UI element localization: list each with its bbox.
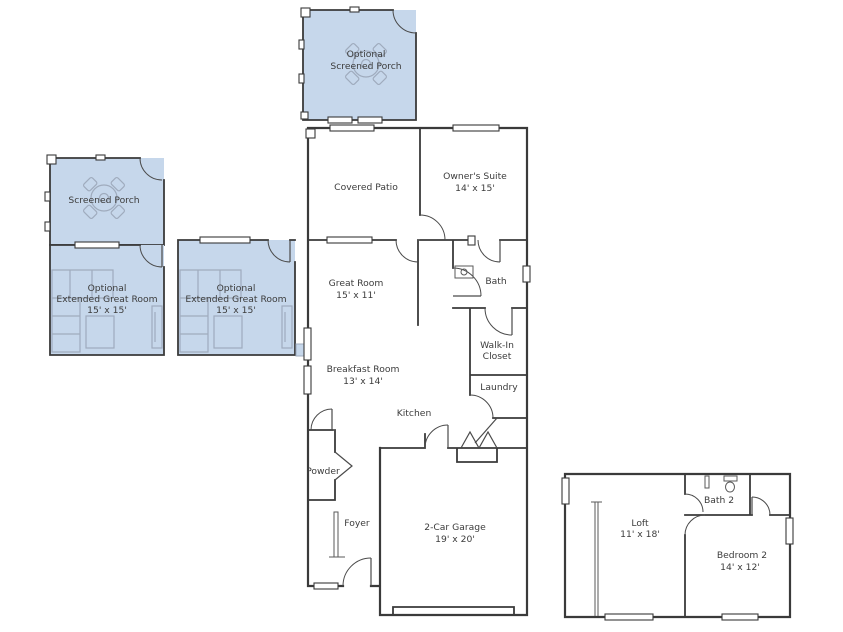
optional-extended-great-room-center: Optional Extended Great Room 15' x 15': [178, 237, 295, 355]
extended-great-room-dimensions: 15' x 15': [216, 305, 256, 316]
second-floor-plan: Loft 11' x 18' Bath 2 Bedroom 2 14' x 12…: [562, 474, 793, 620]
extended-great-room-label: Extended Great Room: [185, 294, 286, 305]
bath-vanity-icon: [455, 266, 473, 278]
breakfast-room-label: Breakfast Room: [327, 364, 400, 375]
garage-label: 2-Car Garage: [424, 522, 486, 533]
breakfast-room-dimensions: 13' x 14': [343, 376, 383, 387]
porch-screen-post: [96, 155, 105, 160]
bath-label: Bath: [485, 276, 507, 287]
bath-2-label: Bath 2: [704, 495, 734, 506]
corner-post: [306, 129, 315, 138]
window: [330, 125, 374, 131]
garage-entry-door-leaf: [475, 418, 497, 443]
window: [786, 518, 793, 544]
window: [304, 366, 311, 394]
screened-porch: Screened Porch: [45, 155, 164, 245]
toilet-icon: [724, 476, 737, 481]
window: [200, 237, 250, 243]
porch-screen-post: [45, 192, 50, 201]
porch-corner-post: [301, 8, 310, 17]
window: [327, 237, 372, 243]
porch-corner-post: [301, 112, 308, 119]
interior-walls: [685, 474, 790, 617]
exterior-walls: [565, 474, 790, 617]
window: [453, 125, 499, 131]
extended-great-room-dimensions: 15' x 15': [87, 305, 127, 316]
garage-dimensions: 19' x 20': [435, 534, 475, 545]
walk-in-closet-label: Walk-In: [480, 340, 514, 351]
toilet-icon: [726, 482, 735, 492]
walk-in-closet-label: Closet: [483, 351, 512, 362]
laundry-label: Laundry: [480, 382, 518, 393]
window: [523, 266, 530, 282]
loft-dimensions: 11' x 18': [620, 529, 660, 540]
optional-extended-great-room-left: Optional Extended Great Room 15' x 15': [50, 242, 164, 355]
porch-screen-post: [350, 7, 359, 12]
powder-label: Powder: [306, 466, 340, 477]
owners-suite-label: Owner's Suite: [443, 171, 507, 182]
optional-screened-porch-label: Screened Porch: [330, 61, 401, 72]
extended-great-room-label: Optional: [88, 283, 127, 294]
porch-corner-post: [47, 155, 56, 164]
main-floor-plan: Covered Patio Owner's Suite 14' x 15' Gr…: [304, 125, 530, 615]
extended-great-room-label: Extended Great Room: [56, 294, 157, 305]
floor-plan-canvas: Optional Screened Porch Screened Porch O…: [0, 0, 843, 632]
foyer-closet-wall: [334, 512, 338, 557]
porch-screen-post: [45, 222, 50, 231]
screened-porch-label: Screened Porch: [68, 195, 139, 206]
bedroom-2-dimensions: 14' x 12': [720, 562, 760, 573]
owners-suite-dimensions: 14' x 15': [455, 183, 495, 194]
great-room-label: Great Room: [329, 278, 384, 289]
stair-rail: [591, 502, 602, 616]
window: [304, 328, 311, 360]
optional-screened-porch-label: Optional: [347, 49, 386, 60]
window: [328, 117, 352, 123]
porch-screen-post: [299, 40, 304, 49]
loft-label: Loft: [631, 518, 649, 529]
bifold-door-icon: [461, 432, 497, 448]
window: [562, 478, 569, 504]
kitchen-label: Kitchen: [397, 408, 432, 419]
window: [75, 242, 119, 248]
window: [358, 117, 382, 123]
covered-patio-label: Covered Patio: [334, 182, 398, 193]
porch-screen-post: [299, 74, 304, 83]
window: [314, 583, 338, 589]
bath2-vanity-icon: [705, 476, 709, 488]
optional-screened-porch: Optional Screened Porch: [299, 7, 416, 123]
great-room-dimensions: 15' x 11': [336, 290, 376, 301]
floor-plan-page: Optional Screened Porch Screened Porch O…: [0, 0, 843, 632]
bedroom-2-label: Bedroom 2: [717, 550, 767, 561]
foyer-label: Foyer: [344, 518, 370, 529]
window: [605, 614, 653, 620]
window: [722, 614, 758, 620]
extended-great-room-label: Optional: [217, 283, 256, 294]
wall-post: [468, 236, 475, 245]
